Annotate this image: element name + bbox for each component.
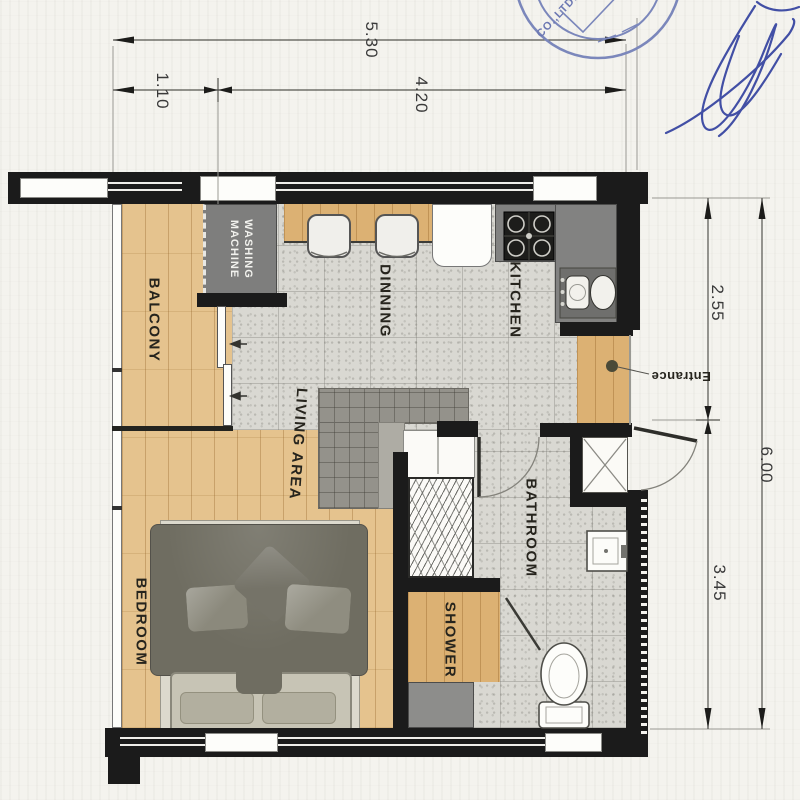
label-dinning: DINNING <box>375 264 394 338</box>
entrance-annotation <box>606 360 649 374</box>
stove <box>504 212 554 260</box>
dim-right-lower: 3.45 <box>709 564 729 601</box>
shower-partition <box>506 598 540 650</box>
label-bedroom: BEDROOM <box>131 578 150 667</box>
chair-seat-curves <box>311 252 415 257</box>
dim-top-left: 1.10 <box>152 72 172 109</box>
sliding-direction-arrows <box>231 341 247 400</box>
bathroom-sink <box>587 531 627 571</box>
kitchen-sink <box>560 268 616 318</box>
label-shower: SHOWER <box>440 602 459 679</box>
toilet <box>539 643 589 728</box>
signature-scribble <box>666 2 799 136</box>
entrance-door <box>634 428 697 490</box>
company-stamp: CO.,LTD. <box>515 0 681 58</box>
plan-linework: CO.,LTD. <box>0 0 800 800</box>
dim-right-upper: 2.55 <box>707 284 727 321</box>
dim-top-total: 5.30 <box>361 21 381 58</box>
floor-plan-sheet: CO.,LTD. BALCONY WASHING MACHINE DINNING… <box>0 0 800 800</box>
label-bathroom: BATHROOM <box>521 478 540 577</box>
label-entrance: Entrance <box>651 368 711 384</box>
label-kitchen: KITCHEN <box>505 261 524 338</box>
label-washing-machine: WASHING MACHINE <box>226 219 254 279</box>
dim-right-total: 6.00 <box>756 446 776 483</box>
dim-top-right: 4.20 <box>411 76 431 113</box>
dimension-lines <box>113 40 762 729</box>
label-balcony: BALCONY <box>144 278 163 363</box>
shaft-cross-icon <box>584 439 626 491</box>
